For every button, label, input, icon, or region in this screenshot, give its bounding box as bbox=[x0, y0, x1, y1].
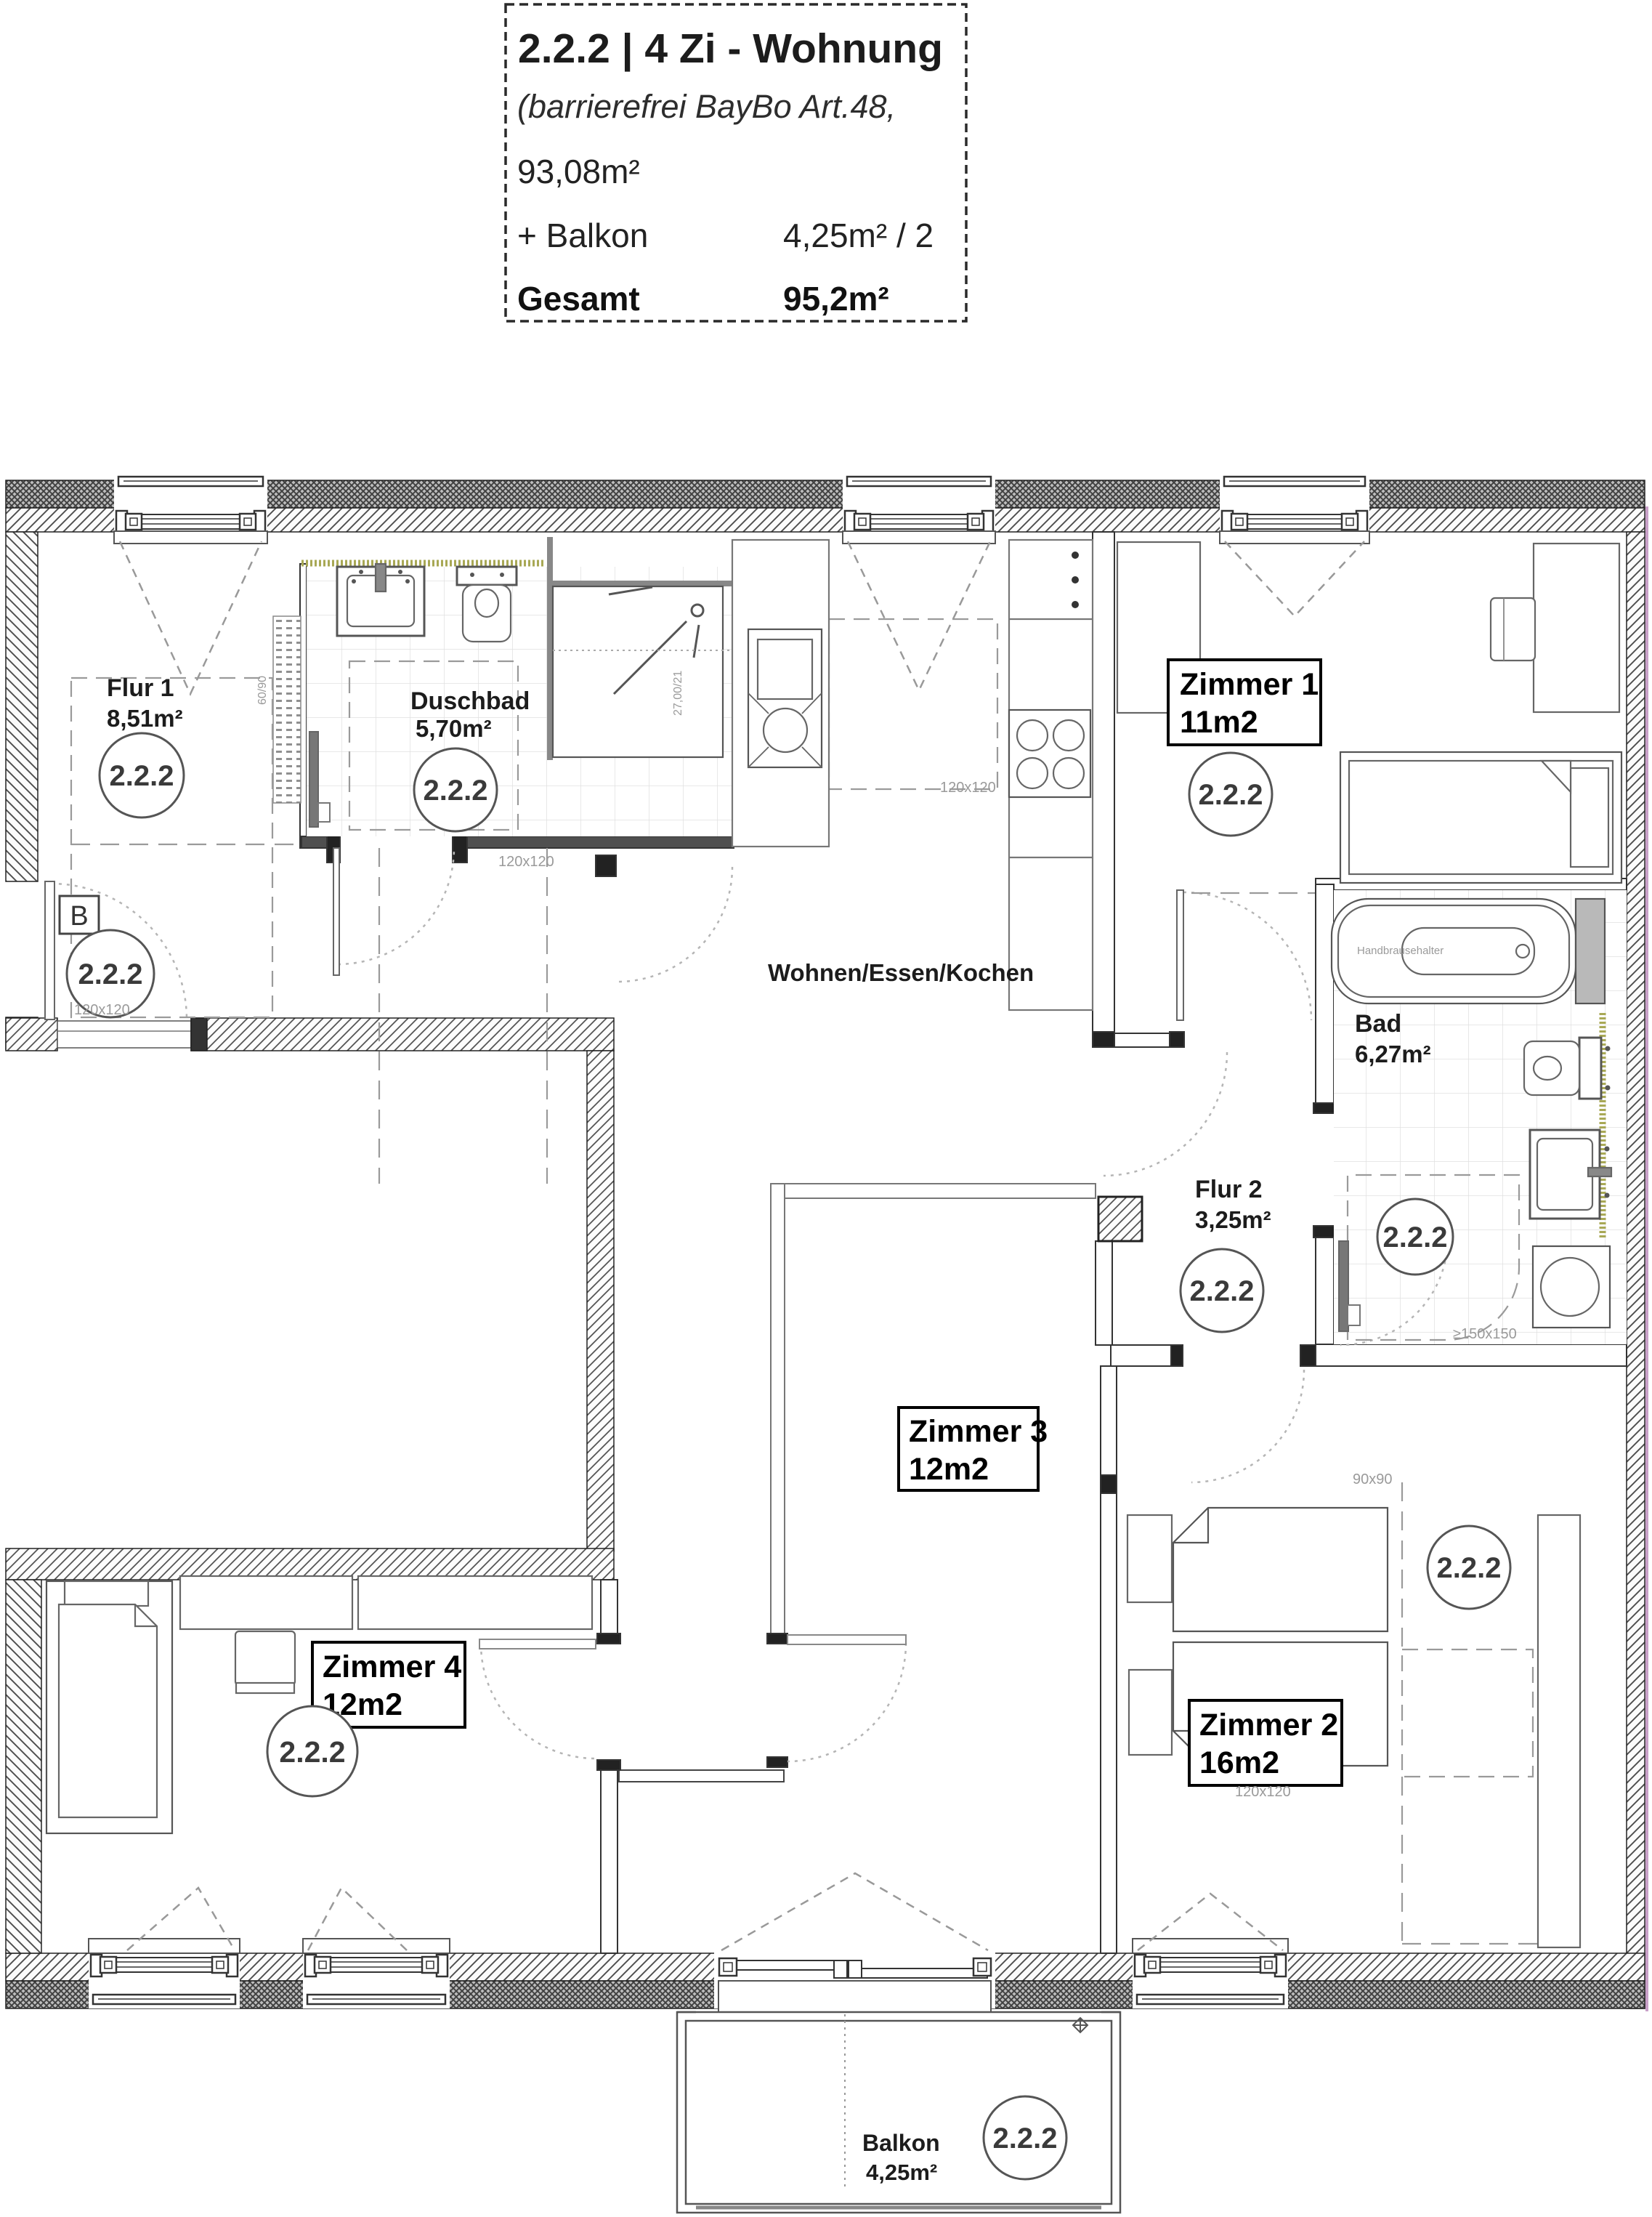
svg-text:93,08m²: 93,08m² bbox=[517, 153, 640, 190]
svg-text:2.2.2 | 4 Zi - Wohnung: 2.2.2 | 4 Zi - Wohnung bbox=[518, 25, 943, 72]
svg-text:B: B bbox=[70, 901, 88, 932]
svg-text:Flur 2: Flur 2 bbox=[1195, 1176, 1263, 1203]
svg-text:Flur 1: Flur 1 bbox=[107, 674, 174, 702]
svg-text:120x120: 120x120 bbox=[74, 1002, 130, 1018]
svg-text:Duschbad: Duschbad bbox=[410, 687, 530, 715]
svg-text:2.2.2: 2.2.2 bbox=[424, 775, 488, 807]
svg-text:2.2.2: 2.2.2 bbox=[279, 1735, 345, 1769]
svg-text:2.2.2: 2.2.2 bbox=[1383, 1221, 1448, 1253]
svg-text:3,25m²: 3,25m² bbox=[1195, 1206, 1271, 1233]
svg-text:95,2m²: 95,2m² bbox=[783, 280, 889, 318]
svg-text:2.2.2: 2.2.2 bbox=[993, 2123, 1058, 2155]
svg-text:8,51m²: 8,51m² bbox=[107, 705, 183, 732]
svg-text:Wohnen/Essen/Kochen: Wohnen/Essen/Kochen bbox=[768, 959, 1034, 986]
svg-text:Zimmer 3: Zimmer 3 bbox=[909, 1414, 1048, 1449]
svg-text:6,27m²: 6,27m² bbox=[1355, 1041, 1431, 1067]
svg-text:120x120: 120x120 bbox=[1235, 1784, 1291, 1800]
svg-text:120x120: 120x120 bbox=[498, 854, 554, 870]
svg-text:Zimmer 4: Zimmer 4 bbox=[323, 1649, 461, 1684]
svg-text:Handbrausehalter: Handbrausehalter bbox=[1357, 945, 1444, 957]
svg-text:2.2.2: 2.2.2 bbox=[78, 958, 143, 990]
svg-text:120x120: 120x120 bbox=[940, 780, 996, 796]
svg-text:4,25m²: 4,25m² bbox=[866, 2160, 937, 2185]
svg-text:Zimmer 2: Zimmer 2 bbox=[1199, 1708, 1338, 1742]
svg-text:+ Balkon: + Balkon bbox=[517, 217, 648, 254]
svg-text:(barrierefrei BayBo Art.48,: (barrierefrei BayBo Art.48, bbox=[517, 88, 896, 125]
svg-text:5,70m²: 5,70m² bbox=[416, 715, 492, 742]
svg-text:12m2: 12m2 bbox=[909, 1452, 989, 1487]
svg-text:2.2.2: 2.2.2 bbox=[1199, 779, 1263, 811]
svg-text:90x90: 90x90 bbox=[1353, 1471, 1393, 1487]
svg-text:60/90: 60/90 bbox=[256, 676, 269, 705]
svg-text:2.2.2: 2.2.2 bbox=[1437, 1552, 1502, 1584]
svg-text:2.2.2: 2.2.2 bbox=[1190, 1275, 1255, 1307]
svg-text:27,00/21: 27,00/21 bbox=[672, 671, 684, 716]
svg-text:2.2.2: 2.2.2 bbox=[110, 760, 174, 792]
svg-text:Bad: Bad bbox=[1355, 1010, 1401, 1038]
svg-text:≥150x150: ≥150x150 bbox=[1453, 1326, 1517, 1342]
svg-text:Gesamt: Gesamt bbox=[517, 280, 640, 318]
svg-text:4,25m² / 2: 4,25m² / 2 bbox=[783, 217, 934, 254]
svg-text:Zimmer 1: Zimmer 1 bbox=[1180, 667, 1319, 702]
svg-text:11m2: 11m2 bbox=[1180, 705, 1258, 740]
svg-text:Balkon: Balkon bbox=[862, 2130, 940, 2156]
svg-text:16m2: 16m2 bbox=[1199, 1745, 1279, 1780]
